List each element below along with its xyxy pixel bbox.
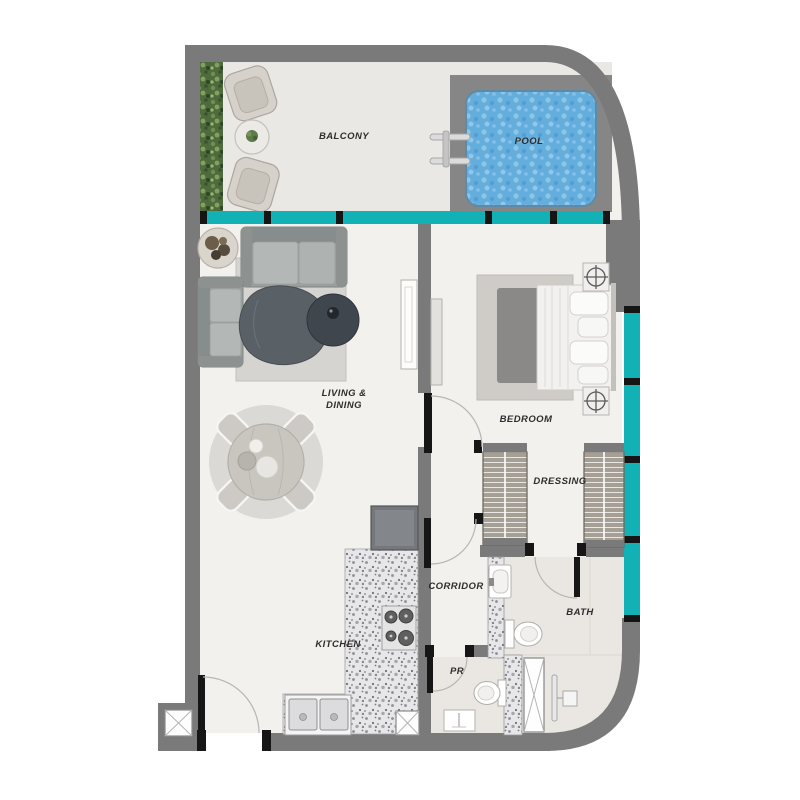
top-wall [185, 45, 545, 62]
pillow [578, 366, 608, 384]
potted-plant-icon [198, 228, 238, 268]
room-label-kitchen: KITCHEN [315, 639, 360, 651]
stove-icon [382, 606, 416, 650]
room-label-balcony: BALCONY [319, 131, 369, 143]
room-label-living-line1: LIVING & [322, 388, 367, 400]
fridge-icon [371, 506, 418, 550]
living-bedroom-wall [418, 224, 431, 393]
wardrobe-right [584, 443, 624, 547]
tv-unit-bedroom [431, 299, 442, 385]
pillow [578, 317, 608, 337]
room-label-bedroom: BEDROOM [500, 414, 553, 426]
kitchen-shaft-icon [396, 711, 419, 735]
north-window-strip [200, 211, 610, 224]
pillow [570, 292, 608, 315]
dining-table [209, 405, 323, 519]
floor-plan: BALCONY POOL LIVING & DINING BEDROOM DRE… [0, 0, 800, 800]
nightstand-top [583, 263, 609, 291]
tv-unit-living [401, 280, 417, 369]
pr-east-wall [504, 655, 522, 735]
nightstand-bottom [583, 387, 609, 415]
room-label-pr: PR [450, 666, 464, 678]
balcony-side-table [235, 120, 269, 154]
bed [537, 283, 616, 391]
headboard [611, 283, 616, 391]
bedroom-zone [477, 263, 616, 415]
pool-water [466, 91, 596, 206]
pr-sink-icon [444, 710, 475, 731]
floor-plan-drawing [0, 0, 800, 800]
bath-shaft-icon [524, 658, 544, 732]
room-label-corridor: CORRIDOR [428, 581, 483, 593]
pillow [570, 341, 608, 364]
entry-shaft-icon [165, 710, 192, 736]
bottom-wall [263, 733, 550, 751]
sofa-top [241, 227, 347, 287]
room-label-pool: POOL [515, 136, 544, 148]
room-label-living-line2: DINING [322, 400, 367, 412]
bath-toilet-icon [505, 620, 542, 648]
balcony-zone [198, 62, 282, 214]
kitchen-sink-icon [285, 695, 351, 735]
pr-toilet-icon [474, 680, 506, 706]
wardrobe-left [483, 443, 527, 545]
planter-strip [198, 62, 223, 212]
dressing-south-wall-left [480, 545, 525, 557]
east-window-strip [624, 306, 640, 622]
room-label-bath: BATH [566, 607, 593, 619]
bottom-right-wall-column [622, 618, 640, 652]
left-wall [185, 45, 200, 733]
room-label-living-dining: LIVING & DINING [322, 388, 367, 412]
sofa-left [198, 277, 243, 367]
bed-runner [497, 288, 540, 383]
washbasin-icon [489, 565, 511, 598]
room-label-dressing: DRESSING [533, 476, 586, 488]
